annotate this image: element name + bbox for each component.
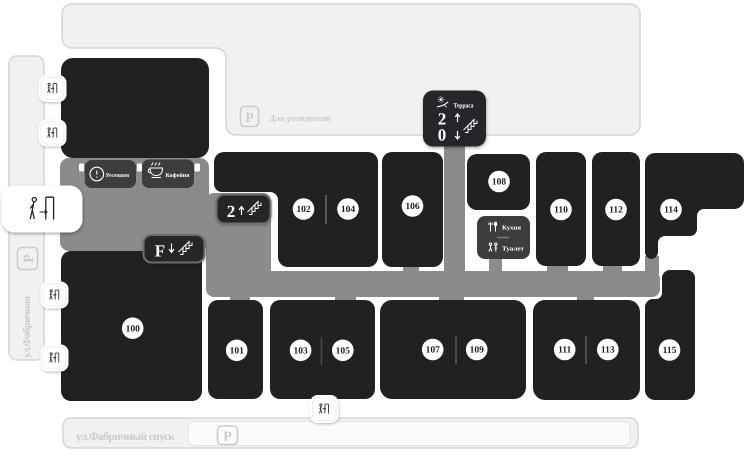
svg-text:104: 104: [341, 205, 356, 215]
svg-text:Кофейня: Кофейня: [166, 172, 191, 179]
svg-text:100: 100: [126, 324, 141, 334]
svg-text:2: 2: [227, 202, 236, 221]
svg-text:P: P: [223, 429, 231, 444]
svg-text:Ресепшен: Ресепшен: [106, 173, 129, 179]
svg-text:Для резидентов: Для резидентов: [269, 113, 331, 123]
svg-text:107: 107: [426, 346, 441, 356]
svg-text:115: 115: [663, 346, 677, 356]
svg-text:F: F: [155, 242, 165, 261]
svg-text:110: 110: [554, 206, 568, 216]
svg-text:102: 102: [296, 205, 311, 215]
svg-text:P: P: [245, 111, 254, 126]
svg-text:112: 112: [609, 206, 623, 216]
svg-text:Кухня: Кухня: [502, 225, 522, 232]
svg-text:111: 111: [558, 346, 571, 356]
svg-text:106: 106: [405, 202, 420, 212]
svg-text:113: 113: [601, 346, 615, 356]
svg-text:0: 0: [438, 126, 447, 145]
svg-text:101: 101: [230, 347, 245, 357]
svg-text:ул.Фабричная: ул.Фабричная: [22, 296, 33, 358]
svg-text:Туалет: Туалет: [502, 246, 525, 253]
svg-text:P: P: [22, 254, 37, 263]
svg-text:ул.Фабричный спуск: ул.Фабричный спуск: [76, 431, 175, 443]
svg-text:114: 114: [664, 206, 678, 216]
svg-text:109: 109: [470, 346, 485, 356]
svg-text:105: 105: [336, 347, 351, 357]
svg-text:108: 108: [492, 178, 507, 188]
svg-text:103: 103: [293, 347, 308, 357]
svg-text:Терраса: Терраса: [454, 103, 475, 110]
